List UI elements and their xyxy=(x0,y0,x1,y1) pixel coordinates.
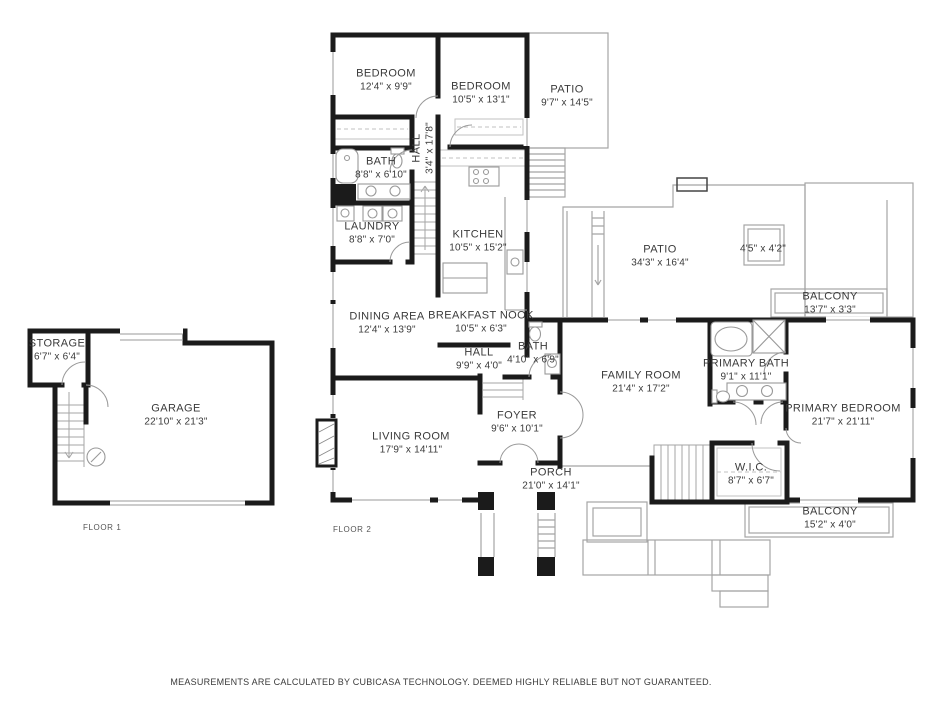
room-dims: 21'4" x 17'2" xyxy=(601,383,681,396)
garage-utility xyxy=(87,448,105,466)
room-label-primary-bedroom: PRIMARY BEDROOM21'7" x 21'11" xyxy=(785,401,901,428)
room-label-bedroom2: BEDROOM10'5" x 13'1" xyxy=(451,79,511,106)
room-name: LAUNDRY xyxy=(344,219,399,233)
room-name: BALCONY xyxy=(802,289,857,303)
room-label-bedroom1: BEDROOM12'4" x 9'9" xyxy=(356,66,416,93)
room-label-storage: STORAGE6'7" x 6'4" xyxy=(29,336,85,363)
room-name: FOYER xyxy=(491,408,543,422)
room-label-wic: W.I.C.8'7" x 6'7" xyxy=(728,460,774,487)
skylight-dims-label: 4'5" x 4'2" xyxy=(740,243,786,256)
room-label-bath2: BATH4'10" x 6'9" xyxy=(507,339,559,366)
fireplace xyxy=(317,420,336,466)
room-label-porch: PORCH21'0" x 14'1" xyxy=(522,465,579,492)
room-dims: 9'1" x 11'1" xyxy=(703,371,789,384)
room-dims: 13'7" x 3'3" xyxy=(802,304,857,317)
room-dims: 15'2" x 4'0" xyxy=(802,519,857,532)
room-dims: 10'5" x 6'3" xyxy=(428,323,534,336)
room-dims: 4'10" x 6'9" xyxy=(507,354,559,367)
room-name: GARAGE xyxy=(144,401,207,415)
room-name: KITCHEN xyxy=(449,227,506,241)
room-name: PATIO xyxy=(541,82,593,96)
room-dims: 9'7" x 14'5" xyxy=(541,97,593,110)
room-dims: 9'6" x 10'1" xyxy=(491,423,543,436)
room-name: PRIMARY BATH xyxy=(703,356,789,370)
room-label-family: FAMILY ROOM21'4" x 17'2" xyxy=(601,368,681,395)
room-name: PATIO xyxy=(631,242,688,256)
room-name: DINING AREA xyxy=(349,309,424,323)
room-name: FAMILY ROOM xyxy=(601,368,681,382)
room-dims: 4'5" x 4'2" xyxy=(740,243,786,256)
room-name: HALL xyxy=(456,345,502,359)
room-label-primary-bath: PRIMARY BATH9'1" x 11'1" xyxy=(703,356,789,383)
room-dims: 10'5" x 15'2" xyxy=(449,242,506,255)
room-label-balcony-lower: BALCONY15'2" x 4'0" xyxy=(802,504,857,531)
room-name: BEDROOM xyxy=(356,66,416,80)
room-name: BEDROOM xyxy=(451,79,511,93)
disclaimer-text: MEASUREMENTS ARE CALCULATED BY CUBICASA … xyxy=(170,677,711,687)
room-dims: 3'4" x 17'8" xyxy=(424,122,437,174)
room-dims: 8'7" x 6'7" xyxy=(728,475,774,488)
room-dims: 6'7" x 6'4" xyxy=(29,351,85,364)
room-label-living: LIVING ROOM17'9" x 14'11" xyxy=(372,429,450,456)
porch-stairs xyxy=(538,513,555,557)
room-dims: 8'8" x 7'0" xyxy=(344,234,399,247)
floor2-label: FLOOR 2 xyxy=(333,525,371,534)
room-label-patio-main: PATIO34'3" x 16'4" xyxy=(631,242,688,269)
room-label-foyer: FOYER9'6" x 10'1" xyxy=(491,408,543,435)
room-dims: 10'5" x 13'1" xyxy=(451,94,511,107)
room-dims: 17'9" x 14'11" xyxy=(372,444,450,457)
room-label-patio-top: PATIO9'7" x 14'5" xyxy=(541,82,593,109)
floorplan-page: BEDROOM12'4" x 9'9" BEDROOM10'5" x 13'1"… xyxy=(0,0,941,705)
room-name: HALL xyxy=(409,122,423,174)
windows xyxy=(110,52,913,505)
room-dims: 21'7" x 21'11" xyxy=(785,416,901,429)
room-name: PRIMARY BEDROOM xyxy=(785,401,901,415)
room-name: BATH xyxy=(355,154,407,168)
room-name: BREAKFAST NOOK xyxy=(428,308,534,322)
room-label-dining: DINING AREA12'4" x 13'9" xyxy=(349,309,424,336)
room-label-bath1: BATH8'8" x 6'10" xyxy=(355,154,407,181)
room-name: STORAGE xyxy=(29,336,85,350)
room-dims: 8'8" x 6'10" xyxy=(355,169,407,182)
room-name: PORCH xyxy=(522,465,579,479)
room-dims: 12'4" x 13'9" xyxy=(349,324,424,337)
foyer-steps xyxy=(483,379,523,400)
floor1-label: FLOOR 1 xyxy=(83,523,121,532)
room-label-garage: GARAGE22'10" x 21'3" xyxy=(144,401,207,428)
room-label-hall-vertical: HALL3'4" x 17'8" xyxy=(409,122,436,174)
room-name: LIVING ROOM xyxy=(372,429,450,443)
room-name: BALCONY xyxy=(802,504,857,518)
room-label-breakfast-nook: BREAKFAST NOOK10'5" x 6'3" xyxy=(428,308,534,335)
room-dims: 34'3" x 16'4" xyxy=(631,257,688,270)
room-label-laundry: LAUNDRY8'8" x 7'0" xyxy=(344,219,399,246)
room-label-kitchen: KITCHEN10'5" x 15'2" xyxy=(449,227,506,254)
room-name: W.I.C. xyxy=(728,460,774,474)
room-dims: 22'10" x 21'3" xyxy=(144,416,207,429)
room-dims: 12'4" x 9'9" xyxy=(356,81,416,94)
room-name: BATH xyxy=(507,339,559,353)
deck-outline xyxy=(583,540,770,575)
room-dims: 9'9" x 4'0" xyxy=(456,360,502,373)
room-label-hall-main: HALL9'9" x 4'0" xyxy=(456,345,502,372)
room-dims: 21'0" x 14'1" xyxy=(522,480,579,493)
room-label-balcony-upper: BALCONY13'7" x 3'3" xyxy=(802,289,857,316)
